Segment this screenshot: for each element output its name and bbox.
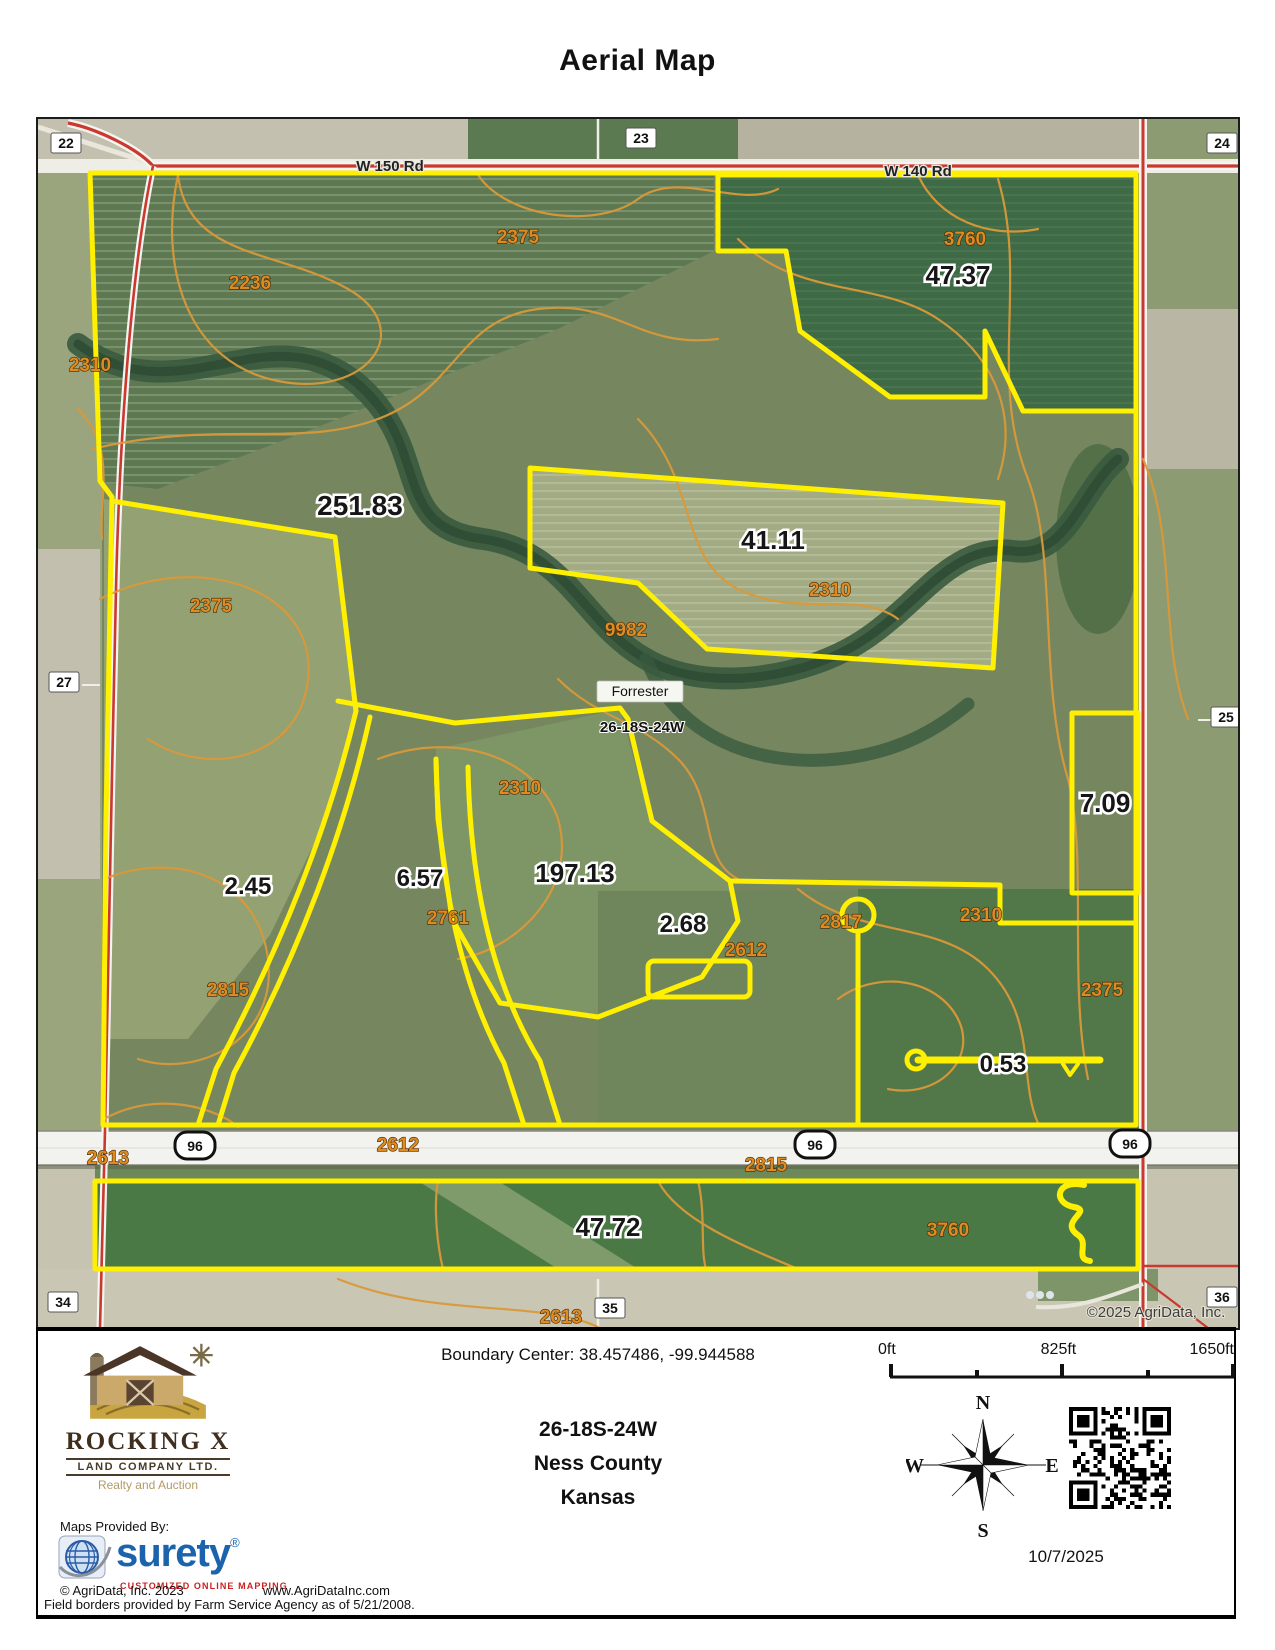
highway-96 — [38, 1131, 1238, 1169]
scale-label-end: 1650ft — [1190, 1341, 1234, 1359]
svg-text:25: 25 — [1218, 709, 1234, 725]
compass-rose-icon: N E S W — [906, 1387, 1060, 1545]
agridata-copyright: © AgriData, Inc. 2023 — [60, 1583, 184, 1598]
map-copyright: ©2025 AgriData, Inc. — [1087, 1304, 1226, 1321]
scale-labels: 0ft 825ft 1650ft — [850, 1341, 1236, 1361]
acreage-label: 2.45 — [225, 873, 272, 900]
rocking-x-tagline: Realty and Auction — [58, 1478, 238, 1492]
contour-label: 2612 — [725, 940, 767, 961]
acreage-label: 47.72 — [575, 1212, 640, 1242]
svg-text:34: 34 — [55, 1294, 71, 1310]
rocking-x-subtitle: LAND COMPANY LTD. — [66, 1458, 230, 1476]
qr-code — [1069, 1407, 1171, 1509]
rocking-x-name: ROCKING X — [58, 1428, 238, 1456]
road-label: W 140 Rd — [884, 163, 952, 180]
township-label: 26-18S-24W — [600, 719, 685, 736]
highway-shield: 96 — [175, 1132, 215, 1159]
surety-globe-icon — [58, 1535, 112, 1581]
svg-text:36: 36 — [1214, 1289, 1230, 1305]
field-borders-note: Field borders provided by Farm Service A… — [44, 1597, 415, 1612]
map-date: 10/7/2025 — [976, 1547, 1156, 1567]
place-label: Forrester — [597, 681, 683, 702]
section-number: 23 — [626, 128, 656, 148]
agridata-url: www.AgriDataInc.com — [263, 1583, 390, 1598]
acreage-label: 251.83 — [317, 490, 403, 521]
acreage-label: 47.37 — [925, 260, 990, 290]
acreage-label: 41.11 — [741, 525, 805, 555]
footer: Boundary Center: 38.457486, -99.944588 2… — [36, 1327, 1236, 1619]
barn-logo-icon — [73, 1337, 223, 1421]
contour-label: 2817 — [820, 912, 862, 933]
acreage-label: 7.09 — [1080, 788, 1131, 818]
boundary-center-label: Boundary Center: 38.457486, -99.944588 — [278, 1345, 918, 1365]
surety-name: surety — [116, 1535, 230, 1571]
page: Aerial Map — [0, 0, 1275, 1650]
road-label: W 150 Rd — [356, 158, 424, 175]
section-number: 34 — [48, 1292, 78, 1312]
surety-registered-mark: ® — [230, 1535, 240, 1550]
section-number: 27 — [49, 672, 79, 692]
svg-text:24: 24 — [1214, 135, 1230, 151]
page-title: Aerial Map — [0, 44, 1275, 78]
svg-text:96: 96 — [187, 1138, 203, 1154]
contour-label: 2613 — [540, 1307, 582, 1328]
agridata-credit: © AgriData, Inc. 2023 www.AgriDataInc.co… — [60, 1583, 390, 1598]
contour-label: 2612 — [377, 1135, 419, 1156]
scale-bar-graphic — [850, 1361, 1236, 1381]
svg-text:23: 23 — [633, 130, 649, 146]
contour-label: 9982 — [605, 620, 647, 641]
compass-south-label: S — [977, 1520, 988, 1542]
highway-shield: 96 — [1110, 1130, 1150, 1157]
contour-label: 2761 — [427, 908, 470, 929]
map-svg: 2236231023753760237523109982231027612815… — [38, 119, 1238, 1328]
compass-east-label: E — [1045, 1455, 1058, 1477]
contour-label: 2815 — [207, 980, 250, 1001]
contour-label: 3760 — [927, 1220, 969, 1241]
contour-label: 2310 — [809, 580, 851, 601]
svg-text:96: 96 — [1122, 1136, 1138, 1152]
svg-text:Forrester: Forrester — [612, 683, 669, 699]
section-number: 22 — [51, 133, 81, 153]
legal-description: 26-18S-24W — [398, 1413, 798, 1447]
acreage-label: 2.68 — [660, 911, 707, 938]
scale-label-start: 0ft — [878, 1341, 896, 1359]
legal-description-block: 26-18S-24W Ness County Kansas — [398, 1413, 798, 1515]
contour-label: 2375 — [1081, 980, 1124, 1001]
section-number: 35 — [595, 1298, 625, 1318]
contour-label: 2613 — [87, 1148, 129, 1169]
acreage-label: 6.57 — [397, 865, 444, 892]
contour-label: 2310 — [499, 778, 541, 799]
state-label: Kansas — [398, 1481, 798, 1515]
contour-label: 2236 — [229, 273, 271, 294]
highway-shield: 96 — [795, 1131, 835, 1158]
contour-label: 2310 — [960, 905, 1002, 926]
section-number: 24 — [1207, 133, 1237, 153]
svg-text:35: 35 — [602, 1300, 618, 1316]
contour-label: 2375 — [497, 227, 540, 248]
contour-label: 2310 — [69, 355, 111, 376]
contour-label: 2375 — [190, 596, 233, 617]
section-number: 25 — [1211, 707, 1238, 727]
aerial-map: 2236231023753760237523109982231027612815… — [36, 117, 1240, 1330]
acreage-label: 197.13 — [535, 858, 615, 888]
compass-north-label: N — [976, 1392, 991, 1414]
rocking-x-logo: ROCKING X LAND COMPANY LTD. Realty and A… — [58, 1337, 238, 1492]
acreage-label: 0.53 — [980, 1051, 1027, 1078]
contour-label: 2815 — [745, 1155, 788, 1176]
scale-bar: 0ft 825ft 1650ft — [850, 1341, 1236, 1386]
svg-text:27: 27 — [56, 674, 72, 690]
svg-text:22: 22 — [58, 135, 74, 151]
contour-label: 3760 — [944, 229, 986, 250]
compass-west-label: W — [906, 1455, 924, 1477]
scale-label-mid: 825ft — [1041, 1341, 1077, 1359]
county-label: Ness County — [398, 1447, 798, 1481]
svg-text:96: 96 — [807, 1137, 823, 1153]
